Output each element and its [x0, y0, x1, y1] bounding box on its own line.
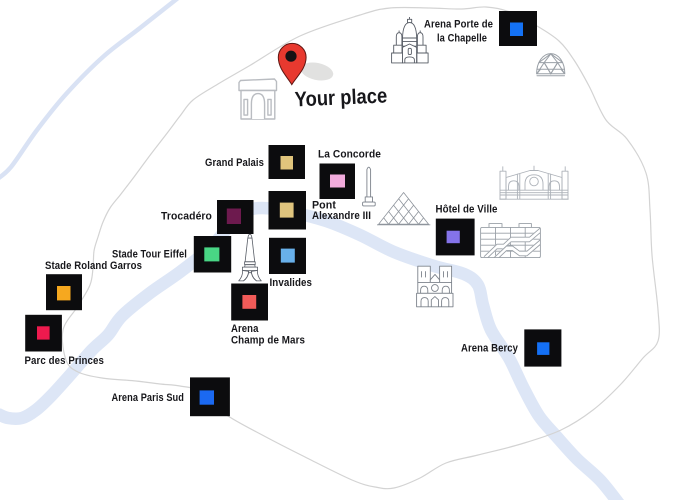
svg-text:Alexandre III: Alexandre III [312, 210, 371, 222]
svg-text:La Concorde: La Concorde [318, 149, 381, 161]
svg-text:Arena Bercy: Arena Bercy [461, 343, 519, 355]
svg-text:Arena Porte de: Arena Porte de [424, 19, 493, 31]
svg-text:Your place: Your place [294, 84, 387, 111]
svg-text:Stade Tour Eiffel: Stade Tour Eiffel [112, 249, 187, 261]
svg-text:Arena: Arena [231, 323, 259, 335]
svg-text:Parc des Princes: Parc des Princes [25, 355, 105, 367]
svg-text:Trocadéro: Trocadéro [161, 211, 212, 223]
svg-text:Champ de Mars: Champ de Mars [231, 335, 305, 347]
svg-text:Hôtel de Ville: Hôtel de Ville [436, 204, 498, 216]
svg-text:Grand Palais: Grand Palais [205, 157, 264, 169]
svg-text:Stade Roland Garros: Stade Roland Garros [45, 260, 142, 272]
svg-text:Invalides: Invalides [270, 277, 313, 289]
svg-text:Arena Paris Sud: Arena Paris Sud [112, 392, 185, 404]
svg-text:la Chapelle: la Chapelle [437, 33, 487, 45]
